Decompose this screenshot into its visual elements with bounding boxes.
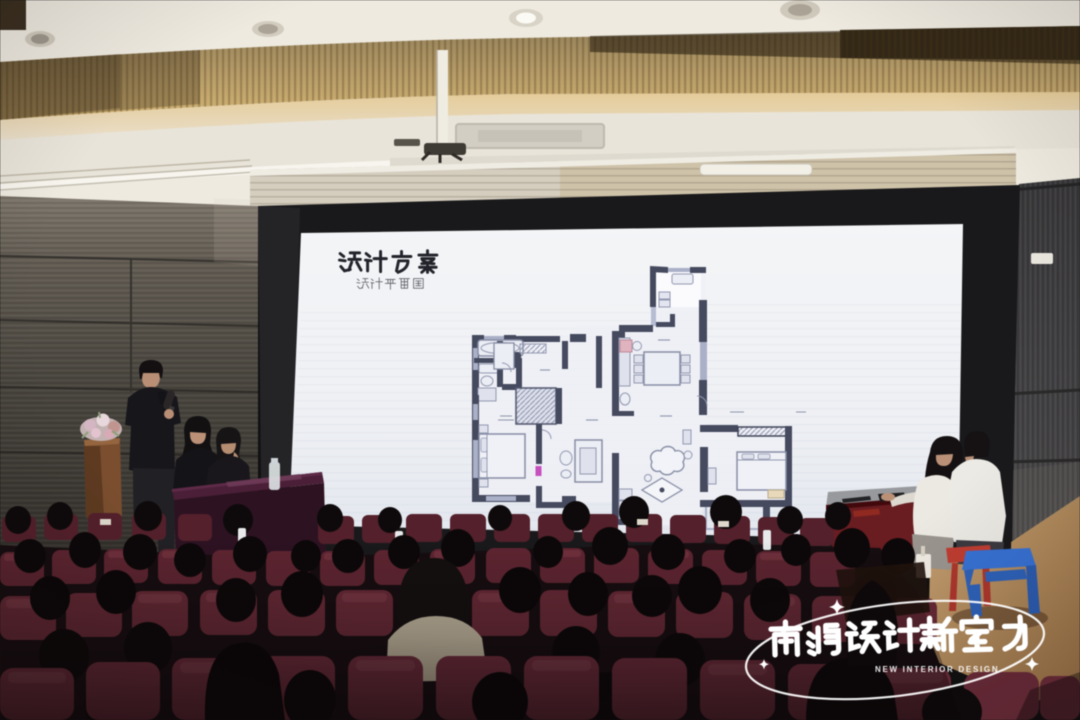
svg-text:NEW INTERIOR DESIGN: NEW INTERIOR DESIGN — [875, 665, 999, 674]
